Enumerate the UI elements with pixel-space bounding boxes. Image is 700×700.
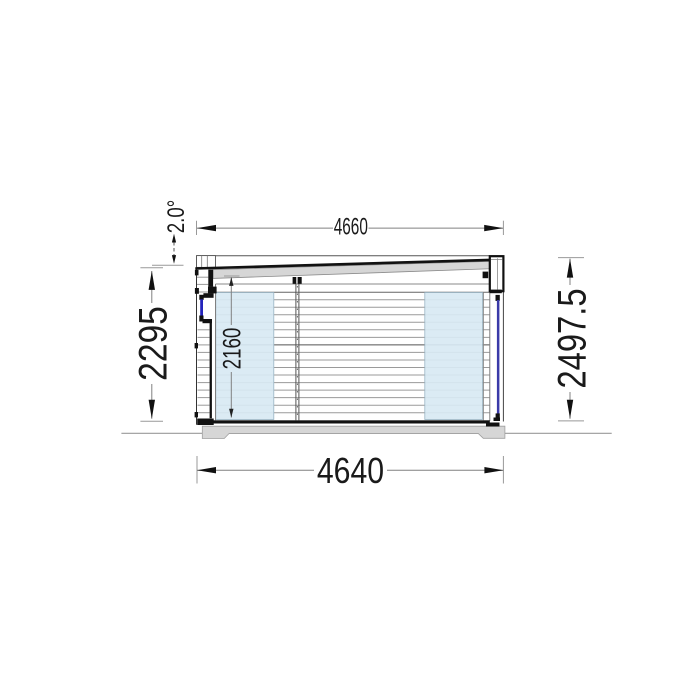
svg-text:2295: 2295 — [131, 306, 175, 381]
svg-text:2497.5: 2497.5 — [549, 288, 594, 388]
svg-text:4640: 4640 — [317, 452, 384, 492]
svg-text:2.0°: 2.0° — [163, 200, 190, 234]
svg-text:2160: 2160 — [218, 328, 246, 370]
svg-text:4660: 4660 — [334, 214, 368, 240]
